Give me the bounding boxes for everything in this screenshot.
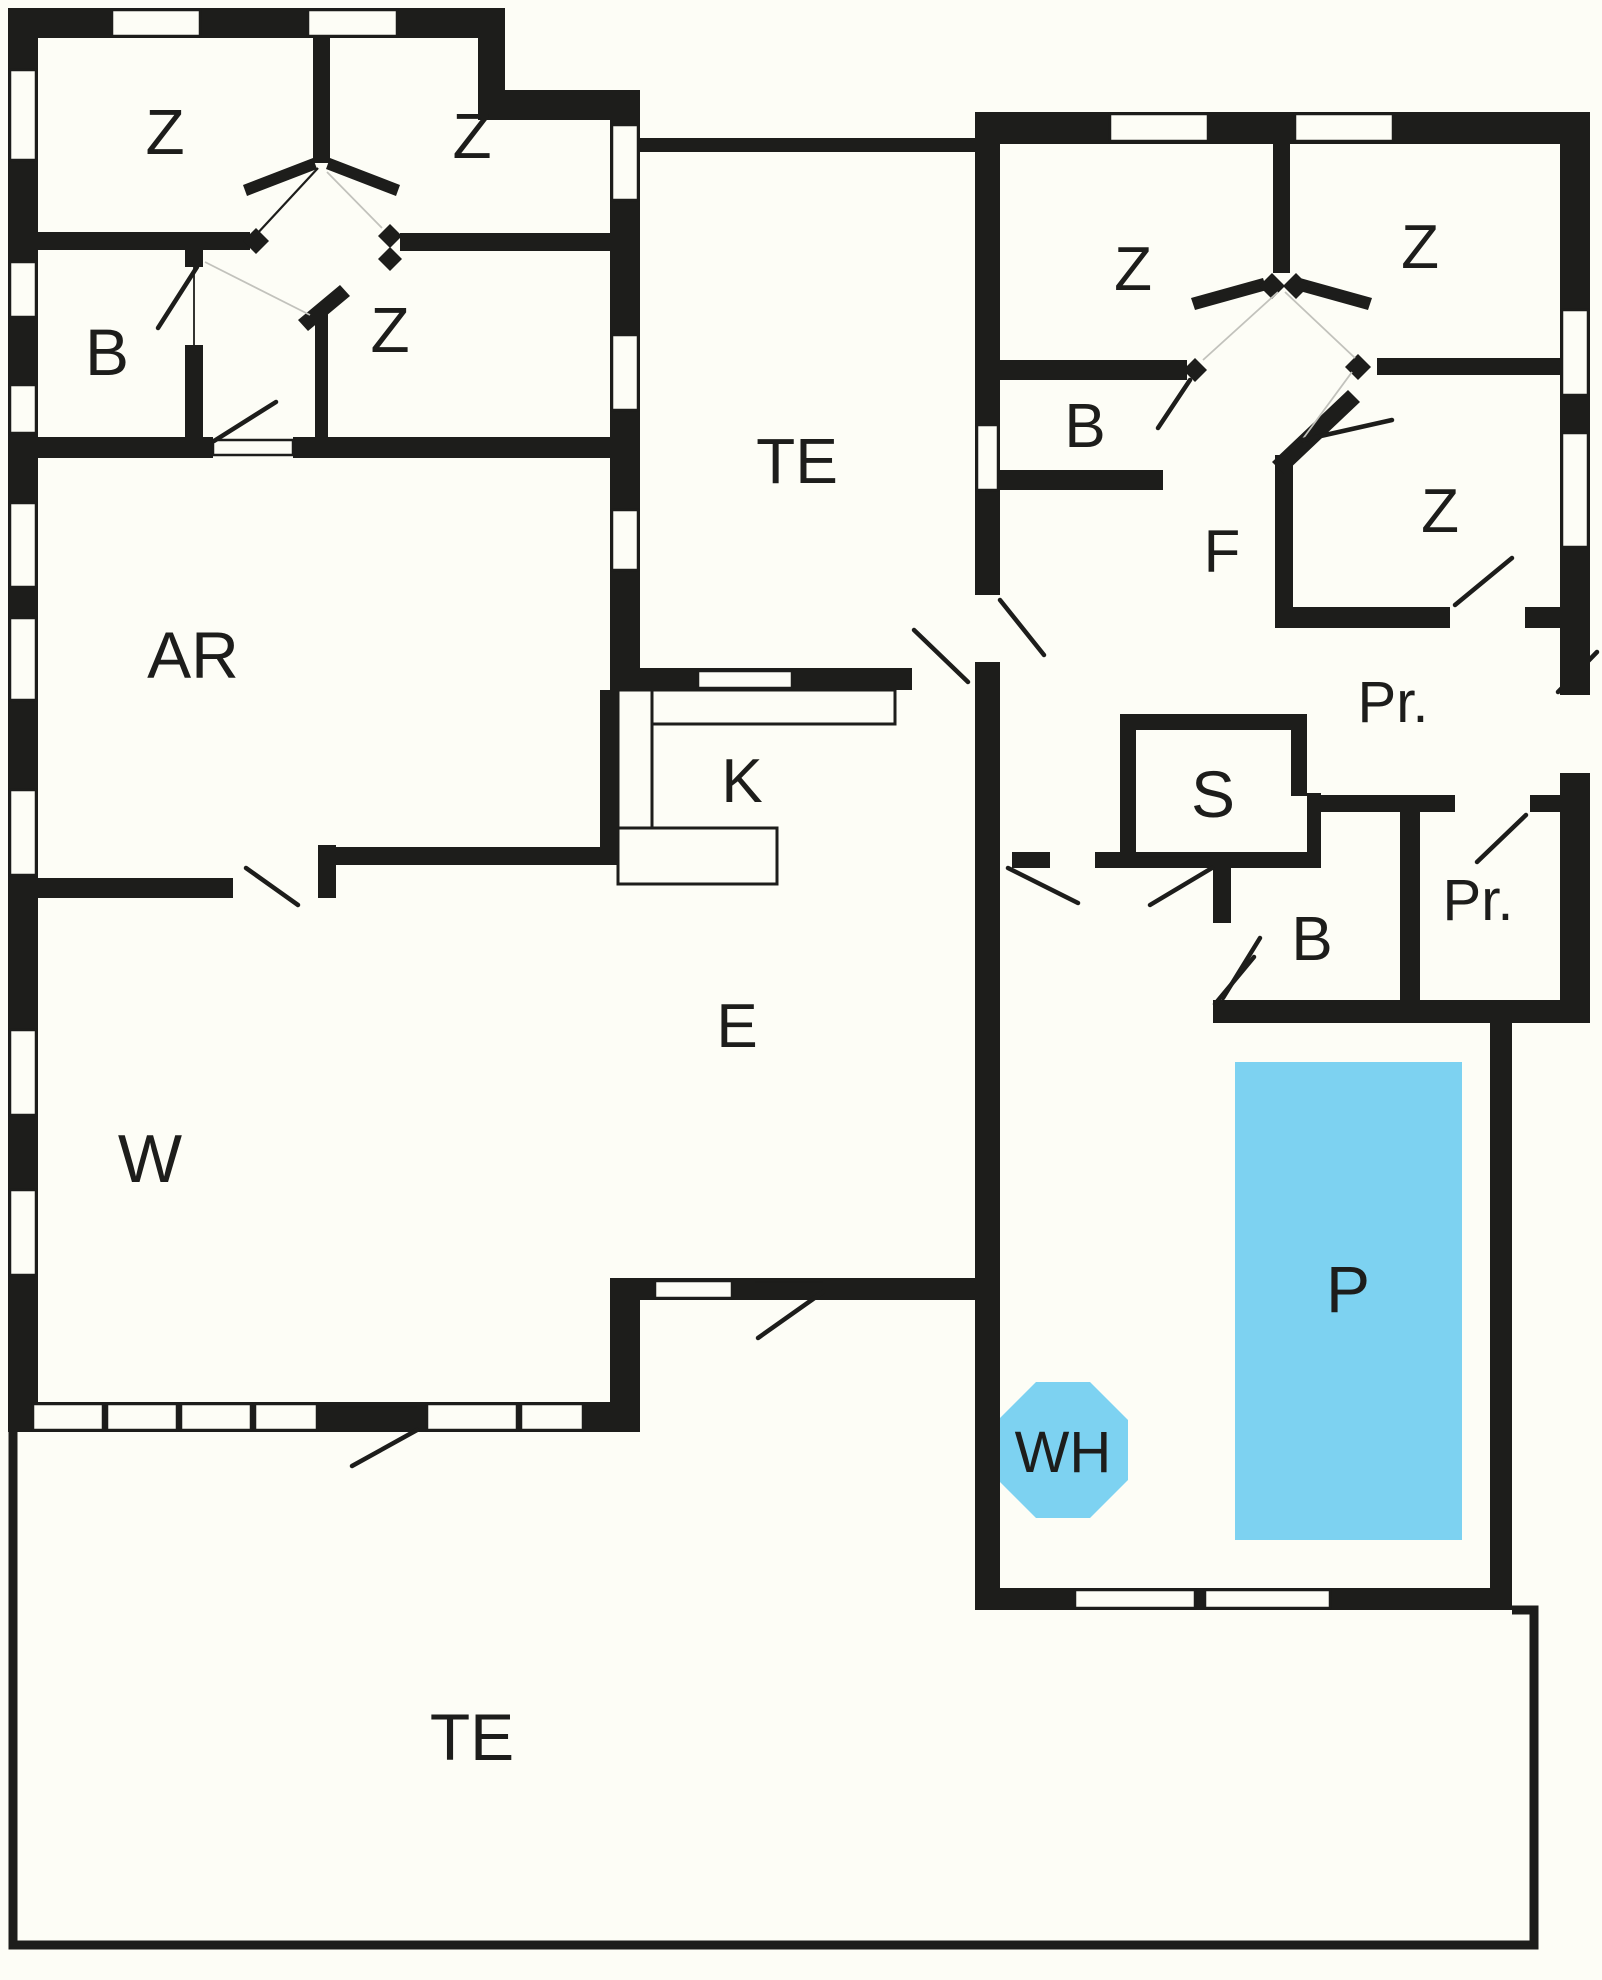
room-label-bathroom-3: B [1291,905,1332,974]
counter-island [618,828,777,884]
room-label-bathroom-2: B [1064,392,1105,461]
room-label-terrace-top: TE [756,425,838,497]
window [10,790,36,875]
floor-plan-svg: Z Z B Z AR W TE K E Z Z B F Z Pr. S B Pr… [0,0,1602,1980]
room-label-bedroom-1: Z [145,96,184,168]
floor-plan-page: Z Z B Z AR W TE K E Z Z B F Z Pr. S B Pr… [0,0,1602,1980]
window [112,10,200,36]
window [1205,1590,1330,1608]
window [10,385,36,433]
room-label-bedroom-6: Z [1421,477,1459,546]
room-label-living-room: AR [147,618,239,692]
room-label-bedroom-2: Z [452,100,491,172]
counter-top [652,690,895,724]
window [612,335,638,410]
room-label-storage-2: Pr. [1443,868,1514,933]
window [10,1190,36,1275]
room-label-sauna: S [1191,757,1235,831]
room-label-lounge: W [118,1121,182,1197]
window [612,125,638,200]
window [107,1404,177,1430]
door-opening [1556,695,1594,773]
window [10,70,36,160]
window [1562,433,1588,547]
room-label-bedroom-4: Z [1114,235,1152,304]
window [10,618,36,700]
window [1075,1590,1195,1608]
window [255,1404,317,1430]
room-label-kitchen: K [721,747,762,816]
window [10,503,36,587]
room-label-entrance: E [716,992,757,1061]
room-label-bedroom-3: Z [370,294,409,366]
window [698,671,792,688]
room-label-pool: P [1326,1252,1370,1326]
room-label-bedroom-5: Z [1401,213,1439,282]
window [1110,114,1208,141]
window [1295,114,1393,141]
room-label-bathroom-1: B [85,315,129,389]
window [1562,310,1588,395]
window [521,1404,583,1430]
window [10,262,36,317]
room-label-storage-1: Pr. [1358,670,1429,735]
window [427,1404,517,1430]
window [308,10,397,36]
room-label-whirlpool: WH [1015,1420,1112,1485]
room-label-hallway: F [1204,518,1241,585]
room-label-terrace-bottom: TE [430,1700,514,1774]
window [10,1030,36,1115]
window [33,1404,103,1430]
window [181,1404,251,1430]
window [655,1281,732,1298]
door-threshold [213,440,293,455]
window [612,510,638,570]
window [977,425,998,490]
